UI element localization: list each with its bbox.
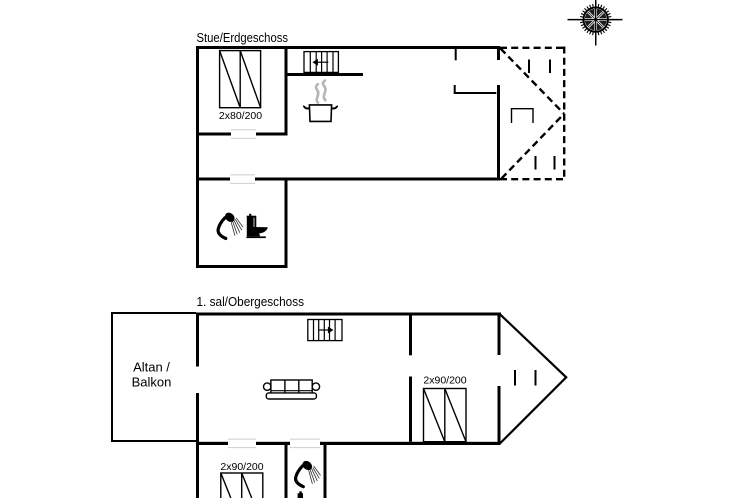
svg-text:2x80/200: 2x80/200 (219, 110, 262, 122)
svg-text:Altan /: Altan / (133, 360, 170, 375)
svg-text:2x90/200: 2x90/200 (220, 461, 263, 473)
svg-text:1. sal/Obergeschoss: 1. sal/Obergeschoss (197, 294, 305, 309)
svg-text:Balkon: Balkon (132, 375, 172, 390)
svg-text:Stue/Erdgeschoss: Stue/Erdgeschoss (197, 30, 289, 45)
svg-text:2x90/200: 2x90/200 (423, 374, 466, 386)
